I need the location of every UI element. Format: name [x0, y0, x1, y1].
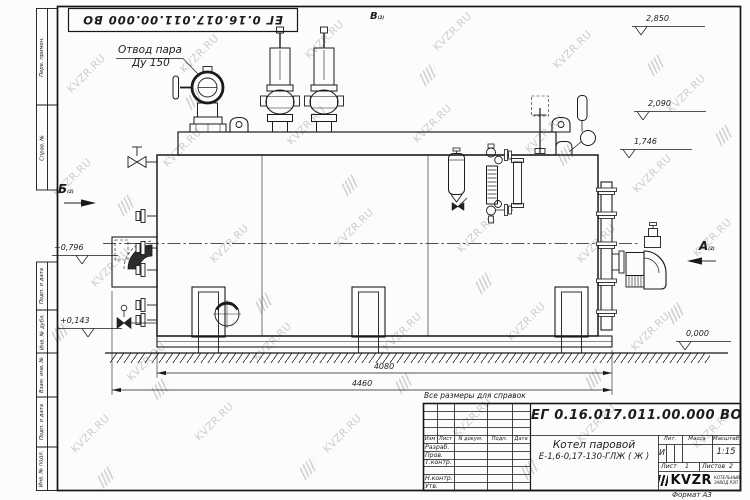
tb-sheet-num: 1 — [685, 464, 689, 471]
tb-row-razrab: Разраб. — [425, 445, 449, 452]
text-layer: ЕГ 0.16.017.011.00.000 ВО Отвод пара Ду … — [0, 0, 750, 500]
dim-4080-value: 4080 — [367, 363, 401, 371]
steam-outlet-label-line2: Ду 150 — [132, 58, 170, 69]
tb-row-tkontr: Т.контр. — [425, 460, 452, 467]
margin-label-inv-podl: Инв. № подл. — [37, 447, 47, 490]
level-0143-value: +0,143 — [60, 317, 90, 325]
brand-name: KVZR — [670, 473, 712, 488]
view-label-v: В(2) — [370, 12, 384, 23]
margin-label-vzam-inv: Взам. инв. № — [37, 353, 47, 397]
tb-sheets-num: 2 — [729, 464, 733, 471]
steam-outlet-label-line1: Отвод пара — [118, 45, 182, 56]
view-b-ref: (2) — [67, 189, 73, 194]
tb-lit-label: Лит. — [658, 437, 682, 443]
doc-number-top: ЕГ 0.16.017.011.00.000 ВО — [68, 8, 297, 31]
view-v-ref: (2) — [378, 15, 384, 20]
margin-label-inv-dubl: Инв. № дубл. — [37, 310, 47, 353]
title-product-model: Е-1,6-0,17-130-ГЛЖ ( Ж ) — [531, 453, 657, 462]
format-label: Формат А3 — [672, 492, 712, 499]
level-0796-value: +0,796 — [54, 244, 84, 252]
view-b-letter: Б — [58, 182, 67, 196]
view-label-b: Б(2) — [58, 183, 74, 196]
brand-sub-line2: ЗАВОД РЭП — [714, 481, 740, 486]
tb-col-izm: Изм — [423, 437, 437, 442]
margin-label-podp-data-1: Подп. и дата — [37, 262, 47, 310]
view-v-letter: В — [370, 11, 378, 22]
tb-scale-value: 1:15 — [712, 448, 740, 457]
margin-label-perv-primen: Перв. примен. — [37, 9, 47, 105]
brand-logo-icon — [659, 475, 668, 486]
tb-row-nkontr: Н.контр. — [425, 476, 453, 483]
tb-col-podp: Подп. — [487, 437, 512, 442]
dim-4460-value: 4460 — [345, 380, 379, 388]
level-0000-value: 0,000 — [686, 330, 709, 338]
brand-logo: KVZR КОТЕЛЬНЫЙ ЗАВОД РЭП — [659, 471, 740, 490]
level-1746-value: 1,746 — [634, 138, 657, 146]
margin-label-sprav-no: Справ. № — [37, 105, 47, 190]
tb-col-ndokum: N докум. — [454, 437, 487, 442]
title-product-name: Котел паровой — [531, 440, 657, 451]
tb-sheet-label: Лист — [661, 464, 677, 471]
level-2090-value: 2,090 — [648, 100, 671, 108]
level-2850-value: 2,850 — [646, 15, 669, 23]
drawing-sheet: KVZR.RUKVZR.RUKVZR.RUKVZR.RUKVZR.RUKVZR.… — [0, 0, 750, 500]
brand-subtitle: КОТЕЛЬНЫЙ ЗАВОД РЭП — [714, 476, 740, 485]
tb-col-data: Дата — [512, 437, 530, 442]
view-a-letter: А — [699, 239, 708, 253]
margin-label-podp-data-2: Подп. и дата — [37, 397, 47, 447]
tb-col-list: Лист — [437, 437, 454, 442]
tb-mass-label: Масса — [682, 437, 712, 443]
reference-note: Все размеры для справок — [424, 392, 526, 400]
view-a-ref: (2) — [708, 246, 714, 251]
tb-lit-value: И — [658, 449, 666, 457]
tb-sheets-label: Листов — [702, 464, 725, 471]
view-label-a: А(2) — [699, 240, 715, 253]
title-doc-number: ЕГ 0.16.017.011.00.000 ВО — [531, 409, 738, 423]
tb-row-utv: Утв. — [425, 484, 438, 491]
tb-scale-label: Масштаб — [712, 437, 740, 443]
